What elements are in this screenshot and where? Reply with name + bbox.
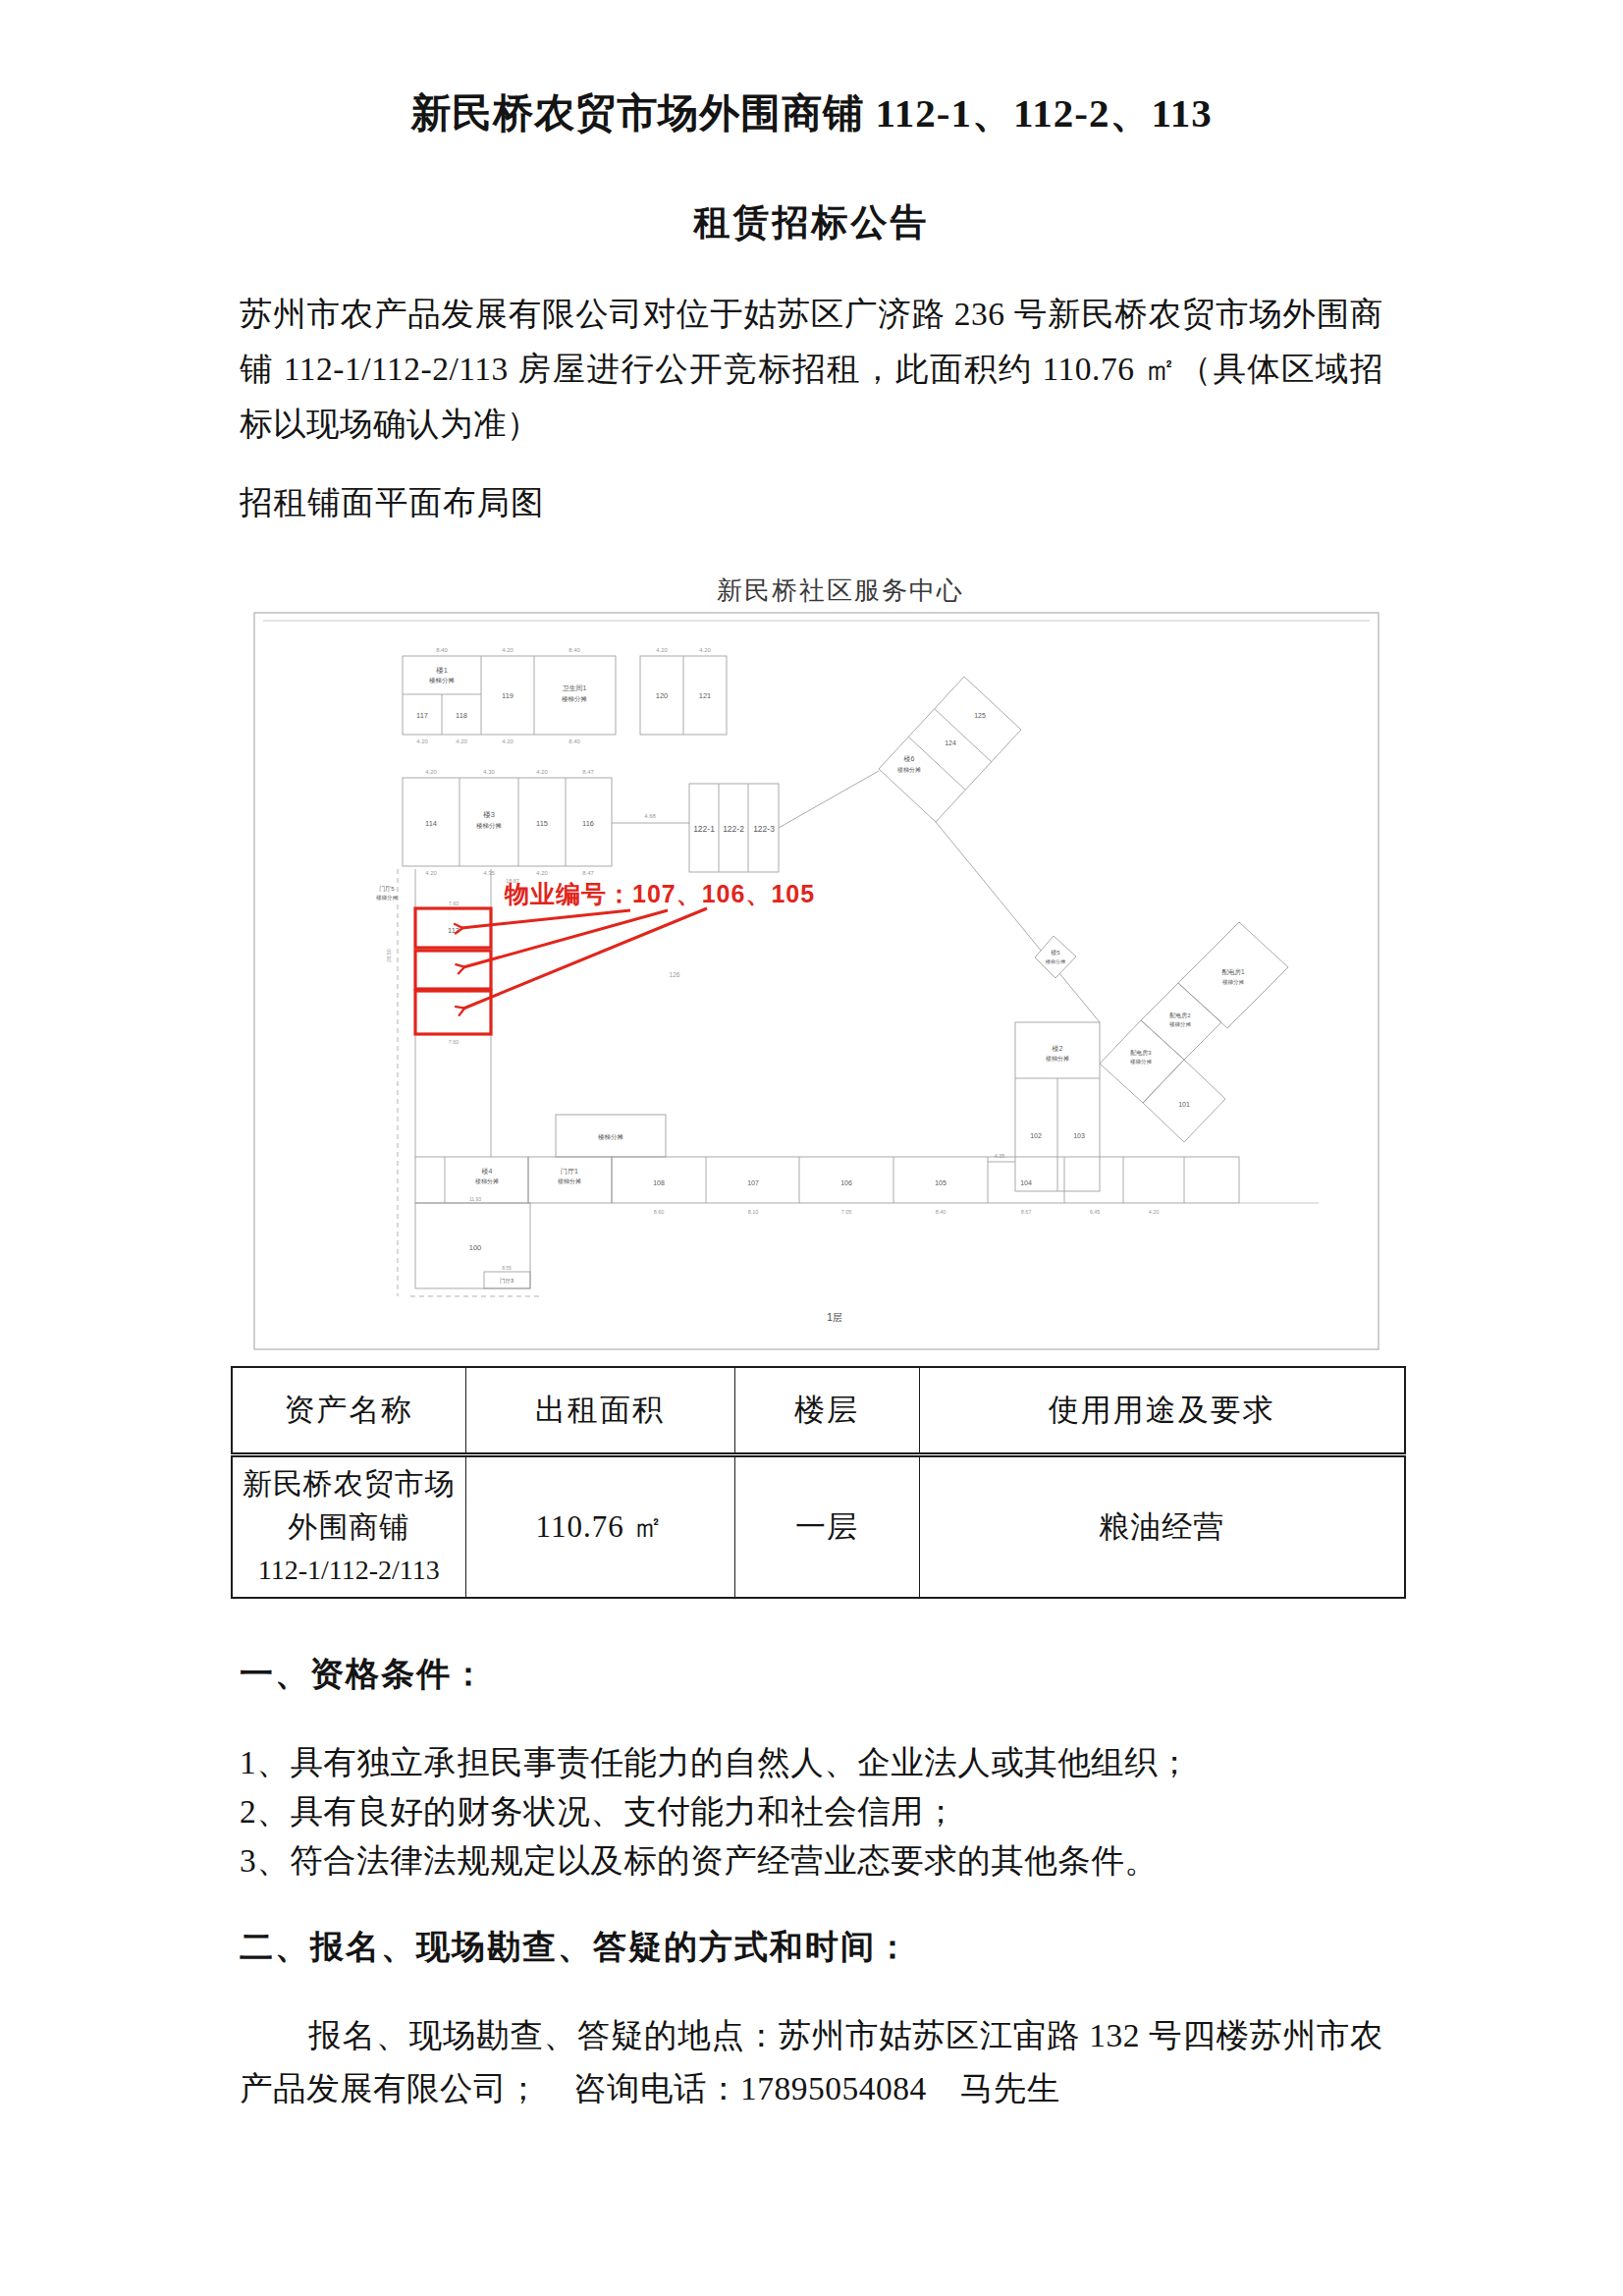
page: 新民桥农贸市场外围商铺 112-1、112-2、113 租赁招标公告 苏州市农产…	[0, 0, 1623, 2296]
svg-text:28.50: 28.50	[386, 949, 392, 962]
svg-text:101: 101	[1178, 1101, 1190, 1108]
qualification-items: 1、具有独立承担民事责任能力的自然人、企业法人或其他组织； 2、具有良好的财务状…	[240, 1738, 1383, 1886]
table-row: 新民桥农贸市场 外围商铺 112-1/112-2/113 110.76 ㎡ 一层…	[232, 1455, 1405, 1599]
section-2-heading: 二、报名、现场勘查、答疑的方式和时间：	[240, 1925, 1383, 1970]
svg-text:121: 121	[699, 691, 712, 700]
subtitle: 租赁招标公告	[240, 198, 1383, 247]
plan-site-title: 新民桥社区服务中心	[717, 576, 1380, 606]
svg-text:18.87: 18.87	[506, 878, 519, 884]
svg-text:117: 117	[416, 711, 428, 720]
section-1-heading: 一、资格条件：	[240, 1652, 1383, 1697]
svg-text:4.20: 4.20	[536, 870, 548, 876]
svg-text:楼梯分摊: 楼梯分摊	[429, 677, 456, 683]
svg-text:8.40: 8.40	[936, 1209, 947, 1215]
floor-plan-drawing: 113 物业编号：107、106、105 楼1楼梯分摊117118119卫生间1…	[253, 612, 1380, 1350]
svg-text:114: 114	[425, 819, 437, 828]
svg-text:118: 118	[456, 711, 467, 720]
svg-text:配电房2: 配电房2	[1169, 1011, 1191, 1019]
svg-text:8.40: 8.40	[436, 647, 448, 653]
svg-text:楼梯分摊: 楼梯分摊	[1169, 1021, 1192, 1027]
svg-text:楼梯分摊: 楼梯分摊	[1046, 1055, 1069, 1062]
svg-text:8.40: 8.40	[568, 647, 580, 653]
svg-text:4.20: 4.20	[502, 738, 514, 744]
svg-text:7.05: 7.05	[841, 1209, 852, 1215]
svg-text:配电房3: 配电房3	[1130, 1049, 1152, 1057]
svg-text:6.45: 6.45	[1090, 1209, 1101, 1215]
svg-text:楼1: 楼1	[436, 666, 448, 675]
svg-text:楼6: 楼6	[904, 755, 915, 763]
lease-table: 资产名称 出租面积 楼层 使用用途及要求 新民桥农贸市场 外围商铺 112-1/…	[231, 1366, 1406, 1599]
svg-text:4.35: 4.35	[483, 870, 495, 876]
svg-text:122-1: 122-1	[693, 824, 715, 834]
svg-text:4.20: 4.20	[416, 738, 428, 744]
svg-text:115: 115	[536, 819, 548, 828]
table-header-row: 资产名称 出租面积 楼层 使用用途及要求	[232, 1367, 1405, 1455]
svg-text:4.68: 4.68	[644, 813, 656, 819]
svg-text:楼梯分摊: 楼梯分摊	[476, 822, 503, 829]
qualification-item-1: 1、具有独立承担民事责任能力的自然人、企业法人或其他组织；	[240, 1738, 1383, 1787]
svg-text:8.47: 8.47	[582, 870, 594, 876]
svg-text:7.60: 7.60	[449, 1039, 460, 1045]
svg-text:8.10: 8.10	[748, 1209, 759, 1215]
qualification-item-3: 3、符合法律法规规定以及标的资产经营业态要求的其他条件。	[240, 1836, 1383, 1886]
svg-text:楼梯分摊: 楼梯分摊	[897, 766, 921, 773]
svg-text:楼2: 楼2	[1053, 1045, 1063, 1053]
svg-text:门厅1: 门厅1	[561, 1168, 578, 1175]
svg-text:楼梯分摊: 楼梯分摊	[1130, 1059, 1153, 1065]
svg-text:106: 106	[840, 1179, 852, 1186]
svg-text:124: 124	[945, 739, 956, 746]
svg-text:4.20: 4.20	[699, 647, 711, 653]
svg-text:门厅3: 门厅3	[500, 1278, 514, 1284]
svg-text:8.55: 8.55	[502, 1265, 512, 1271]
plan-caption: 招租铺面平面布局图	[240, 481, 1383, 525]
svg-text:100: 100	[469, 1243, 482, 1252]
svg-text:楼5: 楼5	[1051, 950, 1060, 956]
svg-text:4.20: 4.20	[425, 870, 437, 876]
svg-text:104: 104	[1020, 1179, 1032, 1186]
svg-text:4.35: 4.35	[995, 1153, 1005, 1159]
header-asset-name: 资产名称	[232, 1367, 465, 1455]
svg-text:103: 103	[1073, 1132, 1085, 1139]
header-floor: 楼层	[734, 1367, 919, 1455]
svg-text:125: 125	[974, 712, 986, 719]
svg-text:105: 105	[935, 1179, 947, 1186]
svg-text:4.20: 4.20	[456, 738, 467, 744]
svg-text:楼梯分摊: 楼梯分摊	[558, 1177, 581, 1184]
cell-usage: 粮油经营	[919, 1455, 1405, 1599]
svg-text:卫生间1: 卫生间1	[563, 684, 587, 692]
svg-text:107: 107	[747, 1179, 759, 1186]
svg-text:楼4: 楼4	[482, 1168, 493, 1175]
svg-text:122-3: 122-3	[753, 824, 775, 834]
svg-text:7.60: 7.60	[449, 901, 460, 906]
qualification-item-2: 2、具有良好的财务状况、支付能力和社会信用；	[240, 1787, 1383, 1836]
svg-text:8.67: 8.67	[1021, 1209, 1032, 1215]
floor-plan: 新民桥社区服务中心	[253, 576, 1380, 1350]
svg-text:4.20: 4.20	[536, 769, 548, 775]
svg-text:119: 119	[502, 691, 514, 700]
header-usage: 使用用途及要求	[919, 1367, 1405, 1455]
svg-text:楼梯分摊: 楼梯分摊	[376, 895, 399, 901]
header-area: 出租面积	[465, 1367, 734, 1455]
svg-text:楼梯分摊: 楼梯分摊	[1222, 979, 1245, 985]
svg-text:楼梯分摊: 楼梯分摊	[598, 1133, 624, 1140]
cell-floor: 一层	[734, 1455, 919, 1599]
svg-text:126: 126	[670, 971, 680, 978]
svg-text:4.30: 4.30	[483, 769, 495, 775]
svg-text:8.47: 8.47	[582, 769, 594, 775]
svg-text:8.60: 8.60	[654, 1209, 665, 1215]
svg-text:配电房1: 配电房1	[1221, 968, 1245, 976]
svg-text:楼梯分摊: 楼梯分摊	[562, 695, 588, 702]
svg-text:11.93: 11.93	[469, 1196, 481, 1202]
svg-text:楼梯分摊: 楼梯分摊	[1045, 958, 1066, 964]
floor-label: 1层	[827, 1312, 842, 1323]
contact-paragraph: 报名、现场勘查、答疑的地点：苏州市姑苏区江宙路 132 号四楼苏州市农产品发展有…	[240, 2009, 1383, 2115]
highlight-room-label: 113	[448, 926, 460, 935]
svg-text:120: 120	[656, 691, 669, 700]
plan-annotation-text: 物业编号：107、106、105	[504, 880, 815, 907]
main-title: 新民桥农贸市场外围商铺 112-1、112-2、113	[240, 88, 1383, 137]
svg-text:门厅5: 门厅5	[379, 885, 395, 892]
svg-text:116: 116	[582, 819, 594, 828]
intro-paragraph: 苏州市农产品发展有限公司对位于姑苏区广济路 236 号新民桥农贸市场外围商铺 1…	[240, 287, 1383, 452]
svg-text:8.40: 8.40	[568, 738, 580, 744]
svg-text:4.20: 4.20	[1149, 1209, 1160, 1215]
svg-text:4.20: 4.20	[425, 769, 437, 775]
svg-text:楼3: 楼3	[483, 810, 495, 819]
plan-frame	[254, 613, 1379, 1349]
svg-text:楼梯分摊: 楼梯分摊	[475, 1177, 499, 1184]
svg-text:122-2: 122-2	[723, 824, 744, 834]
svg-text:4.20: 4.20	[502, 647, 514, 653]
cell-area: 110.76 ㎡	[465, 1455, 734, 1599]
svg-text:108: 108	[653, 1179, 665, 1186]
svg-text:102: 102	[1030, 1132, 1042, 1139]
svg-text:4.20: 4.20	[656, 647, 668, 653]
cell-asset-name: 新民桥农贸市场 外围商铺 112-1/112-2/113	[232, 1455, 465, 1599]
